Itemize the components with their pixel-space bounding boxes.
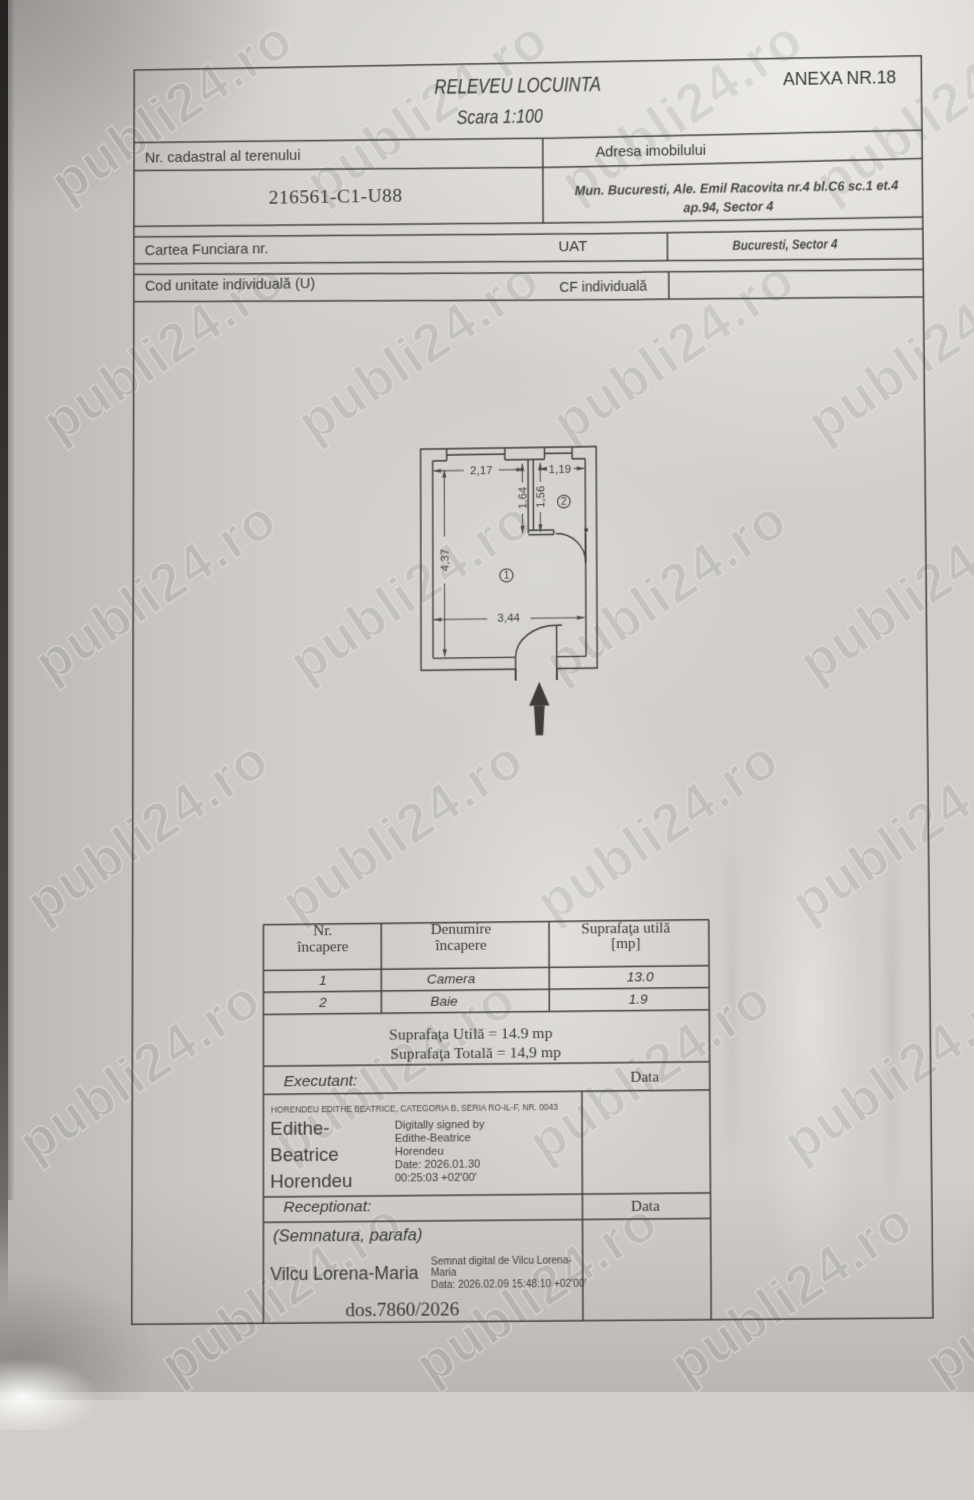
svg-text:2: 2: [561, 497, 567, 508]
svg-text:1,64: 1,64: [517, 487, 529, 509]
svg-text:2,17: 2,17: [470, 465, 492, 477]
svg-text:1: 1: [504, 571, 510, 582]
svg-text:1,56: 1,56: [535, 486, 547, 508]
svg-text:4,37: 4,37: [439, 549, 451, 572]
svg-text:3,44: 3,44: [497, 612, 520, 624]
svg-text:1,19: 1,19: [549, 463, 572, 475]
